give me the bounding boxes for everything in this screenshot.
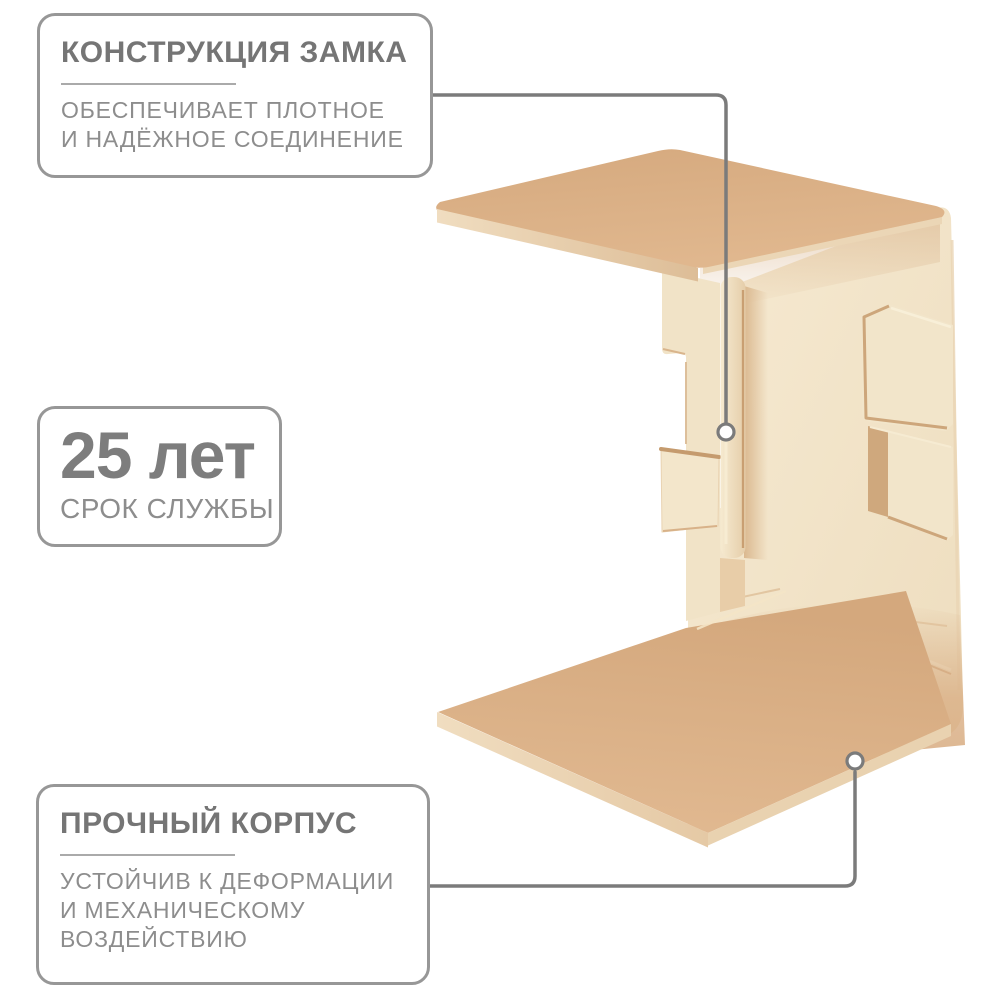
- callout-durable-text-line: УСТОЙЧИВ К ДЕФОРМАЦИИ: [60, 867, 413, 896]
- service-life-value: 25 лет: [60, 422, 271, 489]
- divider: [60, 854, 235, 856]
- callout-marker-lock: [718, 424, 734, 440]
- callout-lock-design: КОНСТРУКЦИЯ ЗАМКА ОБЕСПЕЧИВАЕТ ПЛОТНОЕ И…: [37, 13, 433, 178]
- product-infographic: КОНСТРУКЦИЯ ЗАМКА ОБЕСПЕЧИВАЕТ ПЛОТНОЕ И…: [0, 0, 1000, 1000]
- left-flange: [661, 270, 720, 621]
- callout-lock-text-line: ОБЕСПЕЧИВАЕТ ПЛОТНОЕ: [61, 96, 414, 125]
- side-lug: [661, 448, 719, 532]
- divider: [61, 83, 236, 85]
- callout-service-life: 25 лет СРОК СЛУЖБЫ: [37, 406, 282, 547]
- callout-durable-text-line: ВОЗДЕЙСТВИЮ: [60, 925, 413, 954]
- callout-lock-title: КОНСТРУКЦИЯ ЗАМКА: [61, 37, 414, 69]
- callout-durable-text-line: И МЕХАНИЧЕСКОМУ: [60, 896, 413, 925]
- callout-marker-durable: [847, 753, 863, 769]
- callout-durable-title: ПРОЧНЫЙ КОРПУС: [60, 808, 413, 840]
- bottom-flange: [437, 591, 951, 848]
- service-life-label: СРОК СЛУЖБЫ: [60, 493, 271, 525]
- callout-lock-text-line: И НАДЁЖНОЕ СОЕДИНЕНИЕ: [61, 125, 414, 154]
- callout-durable-body: ПРОЧНЫЙ КОРПУС УСТОЙЧИВ К ДЕФОРМАЦИИ И М…: [36, 784, 430, 985]
